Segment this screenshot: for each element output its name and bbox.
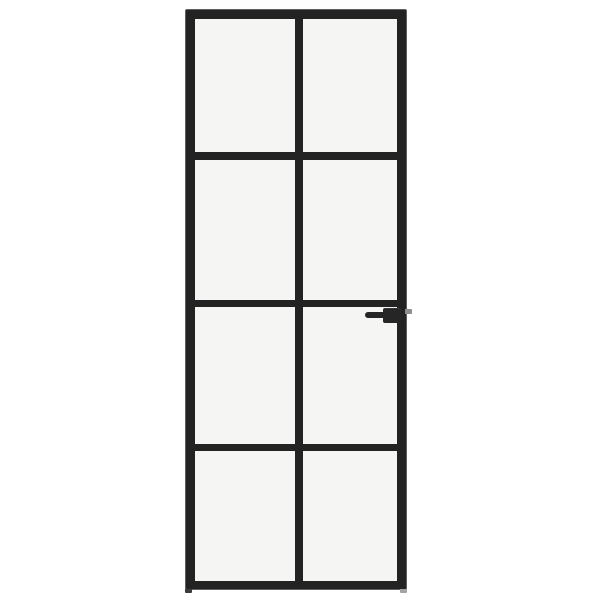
door-handle-base [383, 308, 401, 323]
latch-bolt [405, 309, 412, 314]
glass-pane [195, 307, 295, 444]
glass-pane [303, 19, 397, 152]
glass-pane [195, 19, 295, 152]
glass-door [186, 10, 406, 589]
horizontal-mullion-bottom [195, 444, 397, 451]
glass-pane [195, 160, 295, 300]
horizontal-mullion-middle [195, 300, 397, 307]
pane-grid [195, 19, 397, 581]
glass-pane [303, 307, 397, 444]
frame-foot-left [185, 589, 192, 593]
glass-pane [303, 451, 397, 581]
horizontal-mullion-top [195, 152, 397, 160]
glass-pane [303, 160, 397, 300]
glass-pane [195, 451, 295, 581]
frame-foot-right [400, 589, 407, 593]
product-photo [0, 0, 600, 600]
